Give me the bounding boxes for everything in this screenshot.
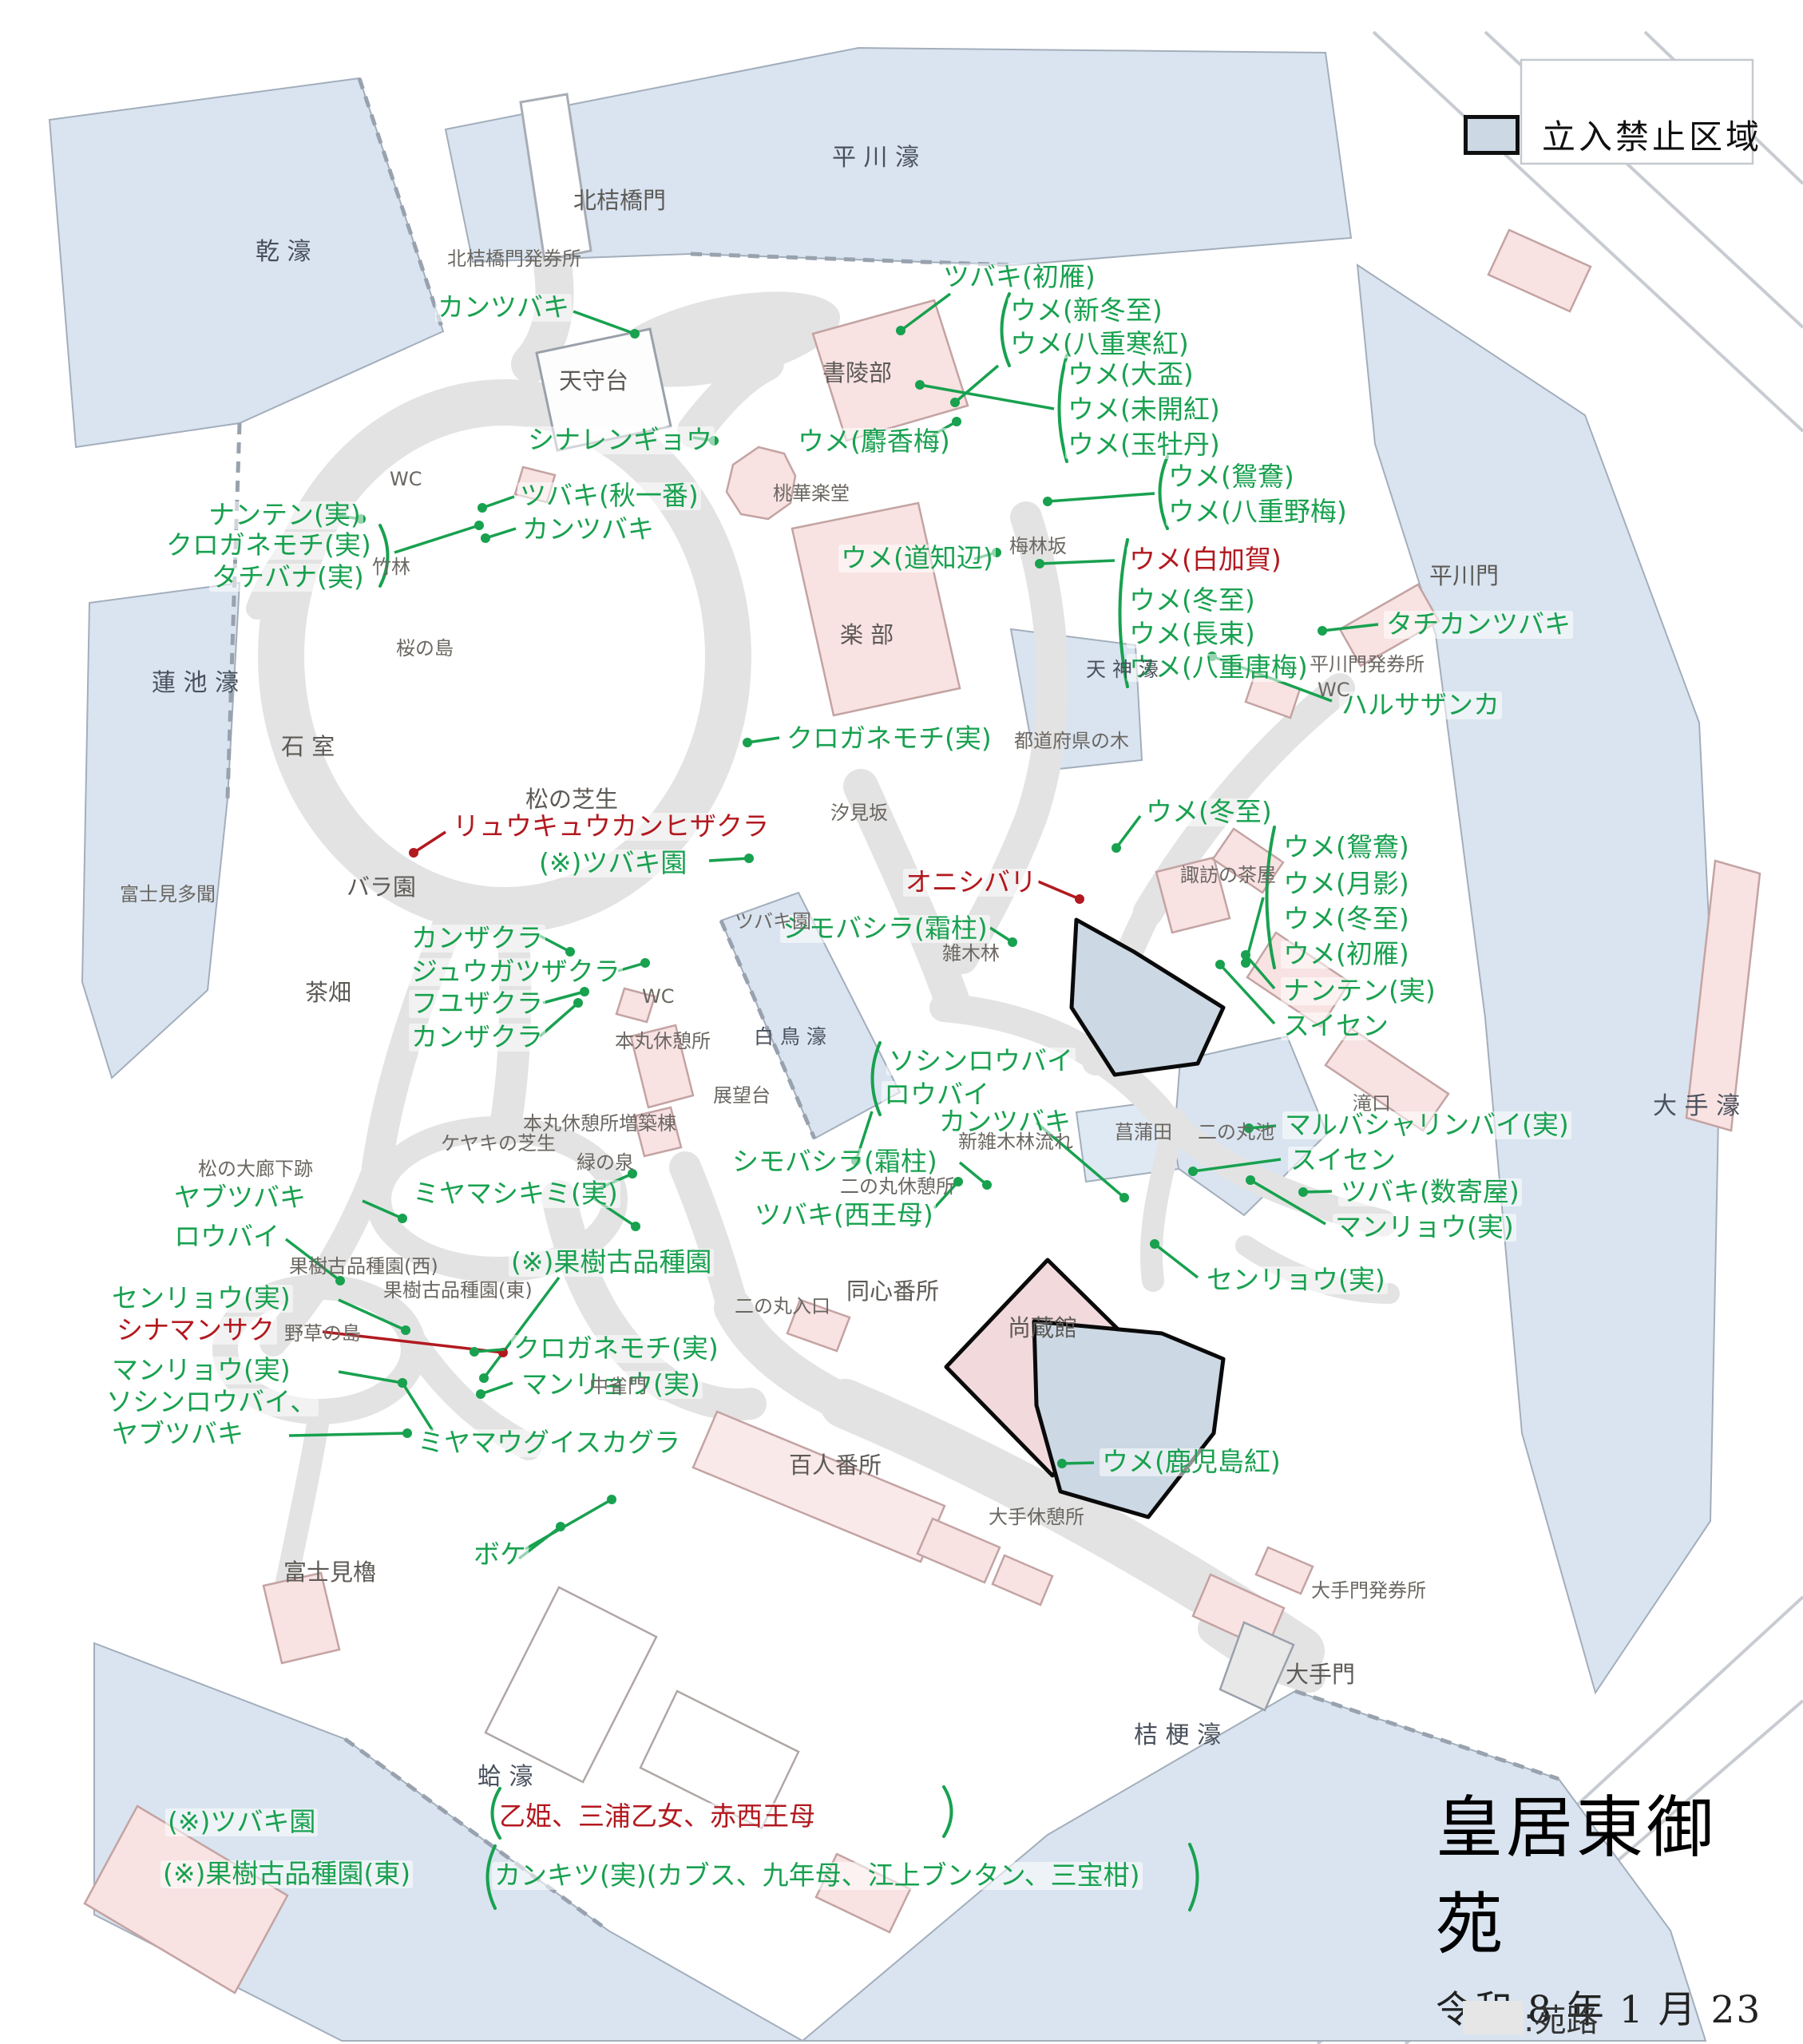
place-label: 果樹古品種園(西) <box>289 1257 438 1277</box>
place-label: WC <box>1318 680 1350 700</box>
plant-label: クロガネモチ(実) <box>511 1335 721 1363</box>
imperial-palace-east-garden-map: カンツバキツバキ(初雁)ウメ(新冬至)ウメ(八重寒紅)ウメ(大盃)ウメ(未開紅)… <box>0 0 1803 2044</box>
plant-label: ヤブツバキ <box>109 1420 246 1448</box>
plant-label: センリョウ(実) <box>1204 1266 1388 1294</box>
restricted-swatch <box>1464 115 1520 155</box>
place-label: 平川門 <box>1429 564 1499 588</box>
plant-label: ナンテン(実) <box>1281 977 1438 1005</box>
restricted-legend-label: 立入禁止区域 <box>1542 110 1762 159</box>
plant-label: ウメ(鴛鴦) <box>1166 463 1297 491</box>
labels-layer: カンツバキツバキ(初雁)ウメ(新冬至)ウメ(八重寒紅)ウメ(大盃)ウメ(未開紅)… <box>0 0 1803 2044</box>
plant-label: ツバキ(西王母) <box>752 1202 936 1230</box>
plant-label: ウメ(冬至) <box>1127 587 1258 615</box>
place-label: 二の丸池 <box>1198 1123 1274 1143</box>
plant-label: シナマンサク <box>114 1317 277 1345</box>
place-label: 緑の泉 <box>577 1153 634 1173</box>
plant-label: カンザクラ <box>409 1024 545 1052</box>
plant-label: シナレンギョウ <box>525 426 715 454</box>
plant-label: ボケ <box>471 1541 529 1569</box>
place-label: 新雑木林流れ <box>958 1132 1073 1152</box>
place-label: 同心番所 <box>846 1279 939 1303</box>
plant-label: シモバシラ(霜柱) <box>730 1148 940 1176</box>
place-label: 北桔橋門発券所 <box>447 249 581 269</box>
plant-label: ウメ(冬至) <box>1143 798 1274 826</box>
place-label: 大手休憩所 <box>989 1507 1084 1527</box>
plant-label: ヤブツバキ <box>172 1184 308 1212</box>
place-label: 百人番所 <box>789 1453 882 1477</box>
place-label: 果樹古品種園(東) <box>383 1281 533 1301</box>
plant-label: カンツバキ <box>520 516 656 544</box>
place-label: 雑木林 <box>942 944 1000 964</box>
place-label: 二の丸入口 <box>735 1297 830 1317</box>
place-label: 菖蒲田 <box>1115 1123 1172 1143</box>
path-legend: :苑路 <box>1463 1994 1598 2041</box>
plant-label: ウメ(冬至) <box>1281 905 1412 933</box>
plant-label: マンリョウ(実) <box>109 1357 293 1384</box>
place-label: 平川門発券所 <box>1310 655 1425 675</box>
place-label: 松の芝生 <box>525 787 618 811</box>
place-label: 富士見多聞 <box>120 885 216 905</box>
place-label: 乾 濠 <box>256 240 311 265</box>
place-label: 野草の島 <box>284 1324 361 1344</box>
plant-label: ウメ(初雁) <box>1281 941 1412 969</box>
plant-label: ナンテン(実) <box>206 501 363 529</box>
plant-label: フユザクラ <box>409 990 545 1018</box>
plant-label: ロウバイ <box>882 1081 992 1109</box>
plant-label: (※)ツバキ園 <box>537 850 689 877</box>
plant-label: タチカンツバキ <box>1384 611 1573 639</box>
place-label: 滝口 <box>1353 1094 1391 1114</box>
plant-label: スイセン <box>1288 1147 1398 1175</box>
place-label: WC <box>390 469 422 489</box>
plant-label: クロガネモチ(実) <box>784 725 994 753</box>
place-label: 北桔橋門 <box>573 188 666 212</box>
place-label: 天守台 <box>559 369 628 393</box>
plant-label: ウメ(白加賀) <box>1127 546 1284 574</box>
place-label: 都道府県の木 <box>1014 731 1129 751</box>
plant-label: タチバナ(実) <box>209 564 367 592</box>
place-label: 白 鳥 濠 <box>754 1027 826 1048</box>
place-label: 平 川 濠 <box>832 145 919 171</box>
plant-label: シモバシラ(霜柱) <box>780 915 990 943</box>
plant-label: ウメ(玉牡丹) <box>1065 431 1222 459</box>
plant-label: ウメ(鴛鴦) <box>1281 834 1412 862</box>
path-legend-label: :苑路 <box>1524 1994 1598 2041</box>
plant-label: ジュウガツザクラ <box>409 958 623 986</box>
plant-label: ウメ(大盃) <box>1065 361 1196 389</box>
place-label: 大 手 濠 <box>1653 1094 1740 1119</box>
place-label: 本丸休憩所 <box>615 1032 711 1052</box>
place-label: 松の大廊下跡 <box>198 1159 313 1179</box>
place-label: 桜の島 <box>396 639 454 659</box>
path-swatch <box>1463 2001 1524 2034</box>
plant-label: マルバシャリンバイ(実) <box>1282 1111 1571 1139</box>
place-label: 蓮 池 濠 <box>152 671 239 696</box>
plant-label: ソシンロウバイ <box>886 1048 1076 1075</box>
place-label: 本丸休憩所増築棟 <box>523 1114 676 1134</box>
plant-label: (※)果樹古品種園 <box>509 1249 714 1277</box>
place-label: 天 神 濠 <box>1086 660 1159 680</box>
plant-label: ソシンロウバイ、 <box>104 1388 319 1416</box>
place-label: WC <box>642 987 675 1007</box>
plant-label: ウメ(八重寒紅) <box>1008 331 1191 358</box>
place-label: 中雀門 <box>589 1377 647 1396</box>
place-label: 尚蔵館 <box>1008 1316 1077 1340</box>
place-label: 諏訪の茶屋 <box>1180 866 1276 885</box>
place-label: 富士見櫓 <box>283 1560 376 1584</box>
place-label: 大手門 <box>1286 1662 1355 1686</box>
place-label: 書陵部 <box>822 361 892 385</box>
place-label: 大手門発券所 <box>1311 1581 1426 1601</box>
map-title: 皇居東御苑 <box>1436 1774 1779 1967</box>
plant-label: スイセン <box>1281 1012 1391 1040</box>
restricted-legend: 立入禁止区域 <box>1464 110 1762 159</box>
plant-label: ハルサザンカ <box>1339 691 1502 719</box>
plant-label: ツバキ(数寄屋) <box>1338 1178 1522 1206</box>
plant-label: ウメ(長束) <box>1127 620 1258 648</box>
place-label: ツバキ園 <box>735 912 811 932</box>
place-label: 蛤 濠 <box>477 1765 533 1790</box>
plant-label: ウメ(麝香梅) <box>795 428 953 456</box>
plant-label: ツバキ(秋一番) <box>517 482 701 510</box>
plant-label: オニシバリ <box>903 869 1039 897</box>
place-label: 石 室 <box>281 735 335 759</box>
plant-label: ツバキ(初雁) <box>941 263 1098 291</box>
plant-label: ウメ(道知辺) <box>838 545 996 572</box>
plant-label: (※)ツバキ園 <box>165 1808 318 1836</box>
plant-label: ウメ(八重野梅) <box>1166 498 1349 526</box>
plant-label: クロガネモチ(実) <box>164 532 374 560</box>
place-label: バラ園 <box>347 875 416 899</box>
place-label: 竹林 <box>372 557 410 577</box>
plant-label: ウメ(鹿児島紅) <box>1100 1448 1283 1476</box>
plant-label: リュウキュウカンヒザクラ <box>450 813 771 841</box>
place-label: 梅林坂 <box>1009 537 1067 557</box>
plant-label: センリョウ(実) <box>109 1285 293 1313</box>
plant-label: カンキツ(実)(カブス、九年母、江上ブンタン、三宝柑) <box>492 1862 1143 1890</box>
plant-label: ロウバイ <box>172 1223 282 1251</box>
plant-label: ミヤマウグイスカグラ <box>415 1429 683 1457</box>
place-label: 楽 部 <box>840 623 894 647</box>
place-label: 展望台 <box>713 1086 771 1106</box>
place-label: 汐見坂 <box>830 803 888 823</box>
plant-label: (※)果樹古品種園(東) <box>160 1860 413 1888</box>
plant-label: マンリョウ(実) <box>1333 1214 1516 1242</box>
plant-label: カンツバキ <box>435 294 572 322</box>
plant-label: カンザクラ <box>409 925 545 953</box>
place-label: 二の丸休憩所 <box>840 1177 955 1197</box>
plant-label: 乙姫、三浦乙女、赤西王母 <box>497 1803 818 1831</box>
place-label: 桃華楽堂 <box>773 484 850 504</box>
place-label: 茶畑 <box>305 980 351 1004</box>
plant-label: ウメ(新冬至) <box>1008 297 1165 325</box>
plant-label: ミヤマシキミ(実) <box>410 1180 620 1208</box>
plant-label: ウメ(未開紅) <box>1065 396 1222 424</box>
plant-label: ウメ(月影) <box>1281 870 1412 898</box>
place-label: ケヤキの芝生 <box>441 1134 556 1154</box>
place-label: 桔 梗 濠 <box>1134 1723 1221 1749</box>
